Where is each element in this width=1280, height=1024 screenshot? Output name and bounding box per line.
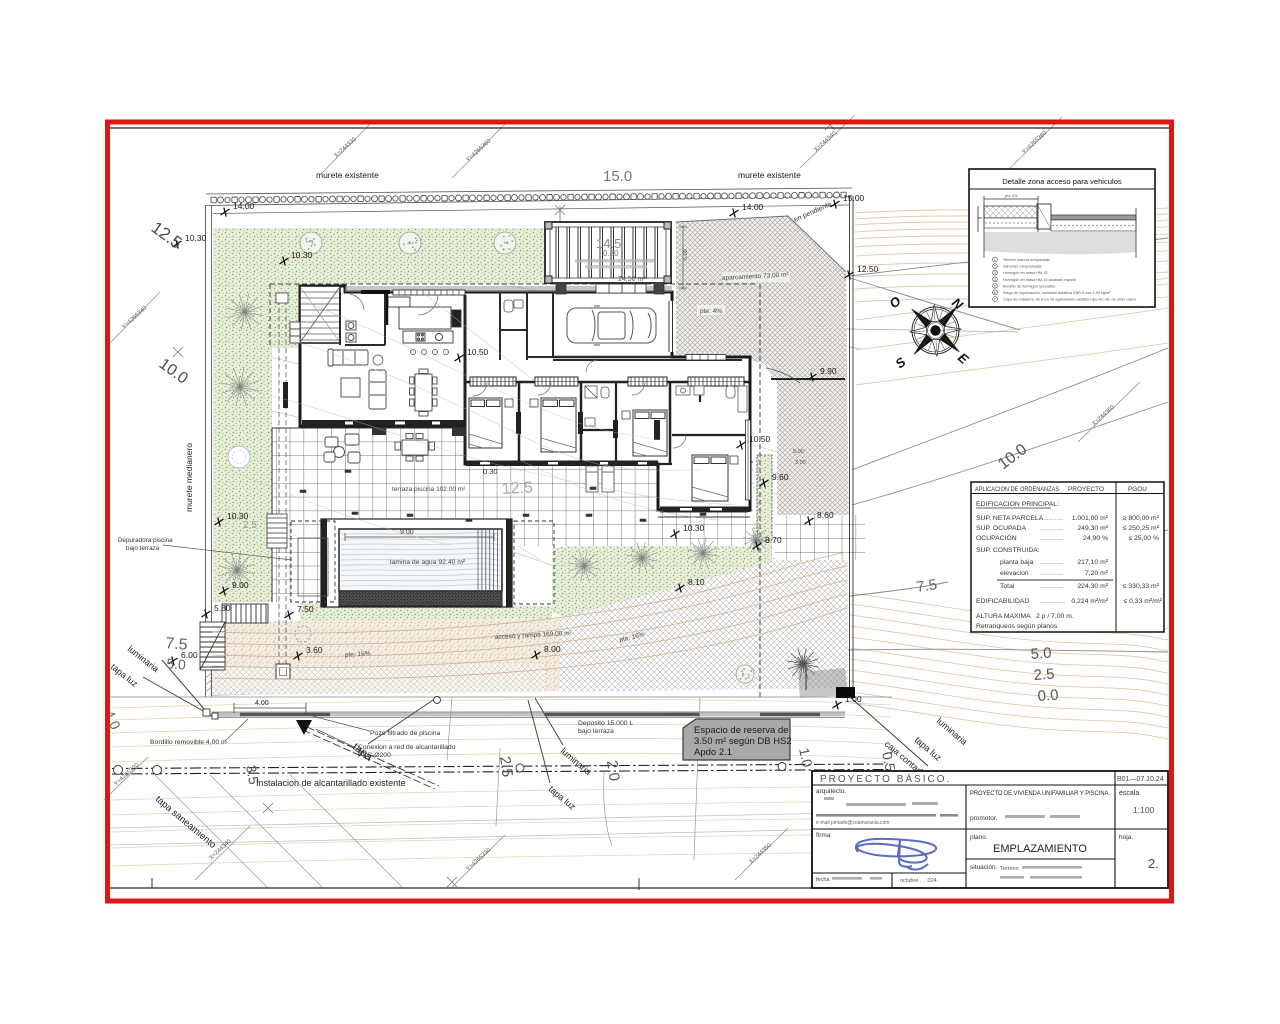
svg-text:3.60: 3.60 [306, 645, 323, 655]
svg-text:planta baja: planta baja [1000, 559, 1033, 566]
svg-text:Detalle zona acceso para vehic: Detalle zona acceso para vehiculos [1002, 177, 1122, 186]
svg-text:..............: .............. [1040, 526, 1064, 532]
svg-text:≥ 800,00 m²: ≥ 800,00 m² [1123, 515, 1160, 522]
svg-text:12.50: 12.50 [857, 264, 879, 274]
svg-text:EDIFICABILIDAD: EDIFICABILIDAD [976, 598, 1029, 605]
svg-text:8.70: 8.70 [765, 535, 782, 545]
svg-text:bajo terraza: bajo terraza [126, 545, 160, 552]
svg-text:terraza piscina 102.00 m²: terraza piscina 102.00 m² [392, 486, 466, 493]
svg-text:Zahorras compactadas: Zahorras compactadas [1003, 265, 1042, 269]
svg-text:..............: .............. [1040, 516, 1064, 522]
svg-text:9.90: 9.90 [820, 366, 837, 376]
svg-text:EDIFICACION PRINCIPAL:: EDIFICACION PRINCIPAL: [976, 501, 1059, 508]
svg-text:8.10: 8.10 [688, 577, 705, 587]
svg-text:9.00: 9.00 [400, 529, 414, 536]
svg-text:5.00: 5.00 [683, 249, 689, 260]
svg-text:firma: firma [816, 832, 831, 839]
svg-text:14.00: 14.00 [233, 201, 255, 211]
svg-text:plano.: plano. [970, 834, 988, 841]
svg-text:situación.: situación. [970, 864, 998, 871]
svg-text:..............: .............. [1040, 571, 1064, 577]
svg-text:..............: .............. [1040, 584, 1064, 590]
svg-text:1:100: 1:100 [1133, 805, 1155, 815]
svg-text:PROYECTO DE VIVIENDA UNIFAM: PROYECTO DE VIVIENDA UNIFAMILIAR Y PISCI… [970, 790, 1110, 797]
svg-text:murete medianero: murete medianero [184, 443, 194, 512]
svg-text:1: 1 [994, 258, 996, 262]
svg-text:Instalacion de alcantarillado: Instalacion de alcantarillado existente [256, 778, 406, 788]
svg-text:15.0: 15.0 [603, 168, 632, 185]
svg-text:2 p / 7,00 m.: 2 p / 7,00 m. [1036, 613, 1074, 620]
svg-text:0.30: 0.30 [483, 467, 498, 476]
svg-text:Pozo filtrado de piscina: Pozo filtrado de piscina [370, 730, 440, 737]
svg-text:Hormigón en masa HM-15: Hormigón en masa HM-15 [1003, 271, 1048, 275]
svg-text:7,20 m²: 7,20 m² [1085, 570, 1109, 577]
svg-text:e-mail pintado@coamurania.com: e-mail pintado@coamurania.com [816, 820, 889, 826]
svg-text:24,50 m²: 24,50 m² [618, 276, 646, 283]
svg-text:Terreno: Terreno [1000, 866, 1019, 872]
svg-text:Depuradora piscina: Depuradora piscina [118, 537, 173, 544]
svg-text:2.: 2. [1148, 856, 1159, 871]
svg-text:6: 6 [994, 291, 996, 295]
svg-text:8.00: 8.00 [544, 644, 561, 654]
svg-text:Terreno natural compactado: Terreno natural compactado [1003, 258, 1050, 262]
svg-text:217,10 m²: 217,10 m² [1077, 559, 1108, 566]
svg-text:2.5: 2.5 [1033, 666, 1055, 684]
svg-text:APLICACION DE ORDENANZAS: APLICACION DE ORDENANZAS [975, 486, 1059, 493]
svg-text:10.50: 10.50 [467, 347, 489, 357]
svg-text:bajo terraza: bajo terraza [578, 728, 614, 735]
svg-text:B01—07.10.24: B01—07.10.24 [1117, 776, 1164, 783]
svg-text:10.30: 10.30 [683, 523, 705, 533]
svg-text:murete existente: murete existente [738, 170, 801, 180]
svg-text:Espacio de reserva de: Espacio de reserva de [694, 725, 789, 736]
svg-text:PROYECTO BÁSICO.: PROYECTO BÁSICO. [820, 772, 951, 785]
svg-text:4.00: 4.00 [255, 700, 269, 707]
svg-text:Hormigón en masa HM-15 acabado: Hormigón en masa HM-15 acabado rayado [1003, 278, 1076, 282]
svg-text:..............: .............. [1040, 536, 1064, 542]
svg-text:224,30 m²: 224,30 m² [1077, 583, 1108, 590]
svg-text:PROYECTO: PROYECTO [1068, 486, 1104, 493]
svg-text:≤ 0,33 m²/m²: ≤ 0,33 m²/m² [1124, 598, 1163, 605]
svg-text:murete existente: murete existente [316, 170, 379, 180]
svg-text:1.00: 1.00 [845, 694, 862, 704]
svg-text:14.00: 14.00 [742, 202, 764, 212]
svg-text:24,90 %: 24,90 % [1083, 535, 1108, 542]
svg-text:0.80: 0.80 [603, 249, 619, 258]
svg-text:octubre . . .024: octubre . . .024 [900, 878, 937, 884]
svg-text:...............: ............... [1040, 599, 1065, 605]
svg-text:5: 5 [994, 284, 996, 288]
svg-text:2: 2 [994, 265, 996, 269]
svg-text:249,30 m²: 249,30 m² [1077, 525, 1108, 532]
svg-text:elevacion: elevacion [1000, 570, 1029, 577]
svg-text:EMPLAZAMIENTO: EMPLAZAMIENTO [993, 843, 1087, 855]
svg-text:7.50: 7.50 [297, 604, 314, 614]
svg-text:2.0: 2.0 [603, 759, 623, 782]
svg-text:ALTURA MAXIMA: ALTURA MAXIMA [976, 613, 1031, 620]
svg-text:Bordillo de hormigón removible: Bordillo de hormigón removible [1003, 284, 1055, 288]
svg-text:3.00: 3.00 [795, 460, 806, 466]
svg-text:7: 7 [994, 298, 996, 302]
svg-text:9.00: 9.00 [232, 580, 249, 590]
svg-text:4: 4 [994, 278, 996, 282]
svg-text:SUP. NETA PARCELA: SUP. NETA PARCELA [976, 515, 1044, 522]
svg-text:promotor.: promotor. [970, 815, 998, 822]
svg-text:3.50 m² según DB HS2: 3.50 m² según DB HS2 [694, 736, 792, 747]
svg-text:10.30: 10.30 [291, 250, 313, 260]
svg-text:3: 3 [994, 271, 996, 275]
svg-text:5.0: 5.0 [166, 655, 187, 673]
svg-text:7.5: 7.5 [165, 635, 189, 654]
svg-text:15.00: 15.00 [843, 193, 865, 203]
svg-text:hoja.: hoja. [1119, 834, 1133, 841]
svg-text:..............: .............. [1040, 560, 1064, 566]
svg-text:Capa de rodadura, de 6 cm de a: Capa de rodadura, de 6 cm de aglomerado … [1003, 298, 1136, 302]
svg-text:escala: escala [1119, 790, 1139, 797]
svg-text:2.5: 2.5 [243, 520, 257, 531]
svg-text:5.80: 5.80 [214, 603, 231, 613]
svg-text:10.30: 10.30 [185, 233, 207, 243]
svg-text:7.5: 7.5 [915, 576, 938, 596]
svg-text:SUP. OCUPADA: SUP. OCUPADA [976, 525, 1026, 532]
svg-text:SUP. CONSTRUIDA:: SUP. CONSTRUIDA: [976, 547, 1040, 554]
svg-text:12.5: 12.5 [501, 479, 533, 498]
svg-text:0,224 m²/m²: 0,224 m²/m² [1071, 598, 1108, 605]
svg-text:8.60: 8.60 [817, 510, 834, 520]
svg-text:≤ 330,33 m²: ≤ 330,33 m² [1123, 583, 1160, 590]
svg-text:fecha: fecha [816, 877, 830, 883]
svg-text:5.00: 5.00 [793, 449, 804, 455]
svg-text:≤ 25,00 %: ≤ 25,00 % [1128, 535, 1159, 542]
svg-text:Conexion a red de alcantarilla: Conexion a red de alcantarillado [358, 744, 456, 751]
svg-text:Apdo 2.1: Apdo 2.1 [694, 747, 732, 758]
svg-text:pte 4%: pte 4% [1005, 193, 1018, 198]
svg-text:5.0: 5.0 [1030, 645, 1052, 663]
svg-text:OCUPACIÓN: OCUPACIÓN [976, 533, 1017, 542]
svg-text:10.50: 10.50 [749, 434, 771, 444]
svg-text:Riego de imprimación, emulsión: Riego de imprimación, emulsión asfáltica… [1003, 291, 1111, 295]
svg-text:1.001,00 m²: 1.001,00 m² [1072, 515, 1109, 522]
svg-text:Deposito 15.000 L: Deposito 15.000 L [578, 720, 633, 727]
svg-text:Total: Total [1000, 583, 1015, 590]
svg-text:0.0: 0.0 [1037, 687, 1059, 705]
svg-text:lamina de agua 92.40 m²: lamina de agua 92.40 m² [390, 559, 466, 566]
svg-text:9.60: 9.60 [772, 472, 789, 482]
svg-text:arquitecto.: arquitecto. [816, 788, 847, 795]
svg-text:Bordillo removible 4,00 m: Bordillo removible 4,00 m [150, 739, 227, 746]
svg-text:Retranqueos según planos: Retranqueos según planos [976, 623, 1058, 630]
svg-text:pte: 4%: pte: 4% [700, 308, 722, 315]
svg-text:2.5: 2.5 [496, 755, 516, 778]
svg-text:PGOU: PGOU [1128, 486, 1147, 493]
svg-text:≤ 250,25 m²: ≤ 250,25 m² [1123, 525, 1160, 532]
